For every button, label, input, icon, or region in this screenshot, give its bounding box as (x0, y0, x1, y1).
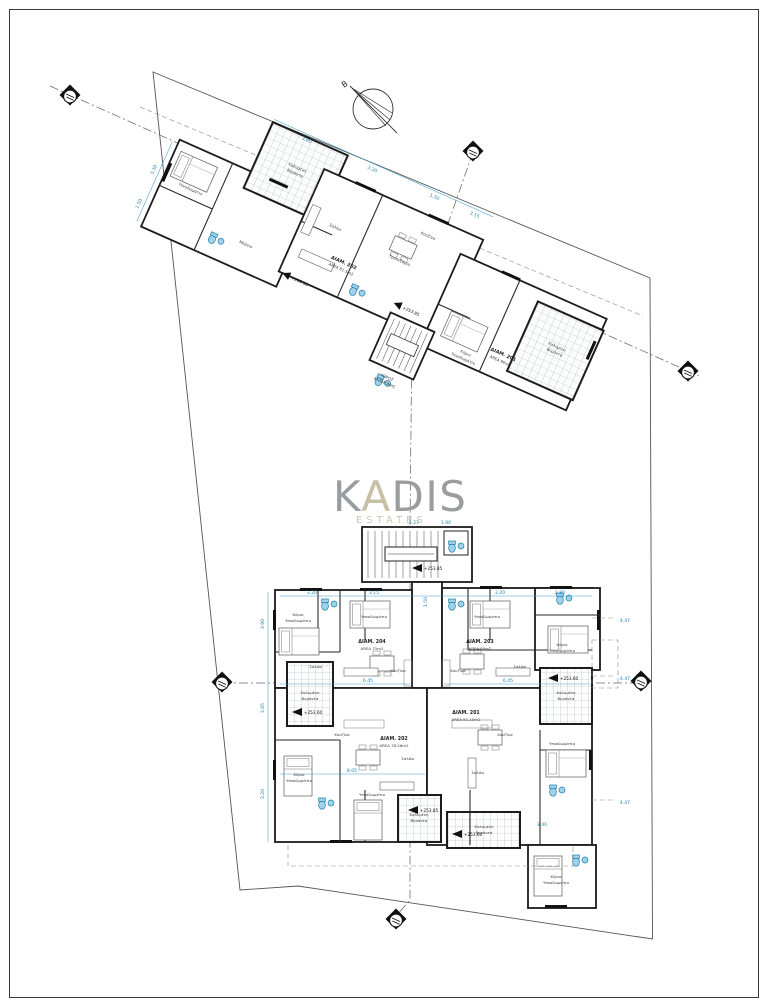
room-label: Σαλόνι (471, 770, 485, 775)
room-label: Υπνοδωμάτιο (549, 648, 576, 653)
dim-label: 3.20 (307, 590, 317, 596)
elevation-label: +253.60 (304, 710, 322, 715)
room-label: Υπνοδωμάτιο (543, 880, 570, 885)
apartment-id: ΔΙΑΜ. 201 (452, 710, 480, 716)
dim-label: 6.45 (503, 678, 513, 684)
dim-label: 2.80 (555, 590, 565, 596)
dim-label: 3.90 (260, 619, 266, 629)
room-label: Βεράντα (476, 830, 493, 835)
room-label: Κύριο (294, 772, 306, 777)
dim-label: 1.27 (409, 520, 419, 526)
dim-label: 4.47 (620, 676, 630, 682)
dim-label: 3.20 (495, 590, 505, 596)
room-label: Καλυμένη (301, 690, 320, 695)
room-label: Βεράντα (302, 696, 319, 701)
dim-label: 3.15 (369, 590, 379, 596)
apartment-id: ΔΙΑΜ. 202 (380, 736, 408, 742)
dim-label: 4.47 (620, 800, 630, 806)
room-label: Υπνοδωμάτιο (285, 618, 312, 623)
room-label: Κύριο (293, 612, 305, 617)
elevation-label: +253.60 (560, 676, 578, 681)
apartment-area: AREA 81.15m2 (451, 717, 481, 722)
apartment-area: AREA 80m2 (469, 646, 492, 651)
dim-label: 1.50 (423, 597, 429, 607)
apartment-id: ΔΙΑΜ. 204 (358, 639, 386, 645)
dim-label: 1.90 (441, 520, 451, 526)
dim-label: 3.20 (260, 789, 266, 799)
lower-staircase (362, 527, 472, 582)
room-label: Κουζίνα (450, 668, 466, 673)
room-label: Υπνοδωμάτιο (359, 792, 386, 797)
dim-label: 6.45 (363, 678, 373, 684)
apartment-area: AREA 78.26m2 (379, 743, 409, 748)
room-label: Βεράντα (558, 696, 575, 701)
room-label: Υπνοδωμάτιο (474, 614, 501, 619)
watermark-brand: KADIS (333, 472, 467, 521)
elevation-label: +253.85 (424, 566, 442, 571)
room-label: Καλυμένη (410, 812, 429, 817)
dim-label: 3.65 (260, 703, 266, 713)
room-label: Σαλόνι (513, 664, 527, 669)
room-label: Καλυμένη (475, 824, 494, 829)
dim-label: 3.40 (537, 822, 547, 828)
room-label: Κουζίνα (497, 732, 513, 737)
floor-plan-canvas: B KADIS ESTATES (0, 0, 768, 1005)
room-label: Σαλόνι (309, 664, 323, 669)
room-label: Κύριο (557, 642, 569, 647)
room-label: Καλυμένη (557, 690, 576, 695)
room-label: Υπνοδωμάτιο (286, 778, 313, 783)
room-label: Βεράντα (411, 818, 428, 823)
room-label: Κουζίνα (334, 732, 350, 737)
room-label: Κουζίνα (390, 668, 406, 673)
dim-label: 8.05 (347, 768, 357, 774)
room-label: Υπνοδωμάτιο (361, 614, 388, 619)
room-label: Κύριο (551, 874, 563, 879)
apartment-area: AREA 75m2 (361, 646, 384, 651)
apartment-id: ΔΙΑΜ. 203 (466, 639, 494, 645)
room-label: Υπνοδωμάτιο (549, 741, 576, 746)
watermark: KADIS ESTATES (333, 472, 467, 526)
dim-label: 4.47 (620, 618, 630, 624)
room-label: Σαλόνι (401, 756, 415, 761)
